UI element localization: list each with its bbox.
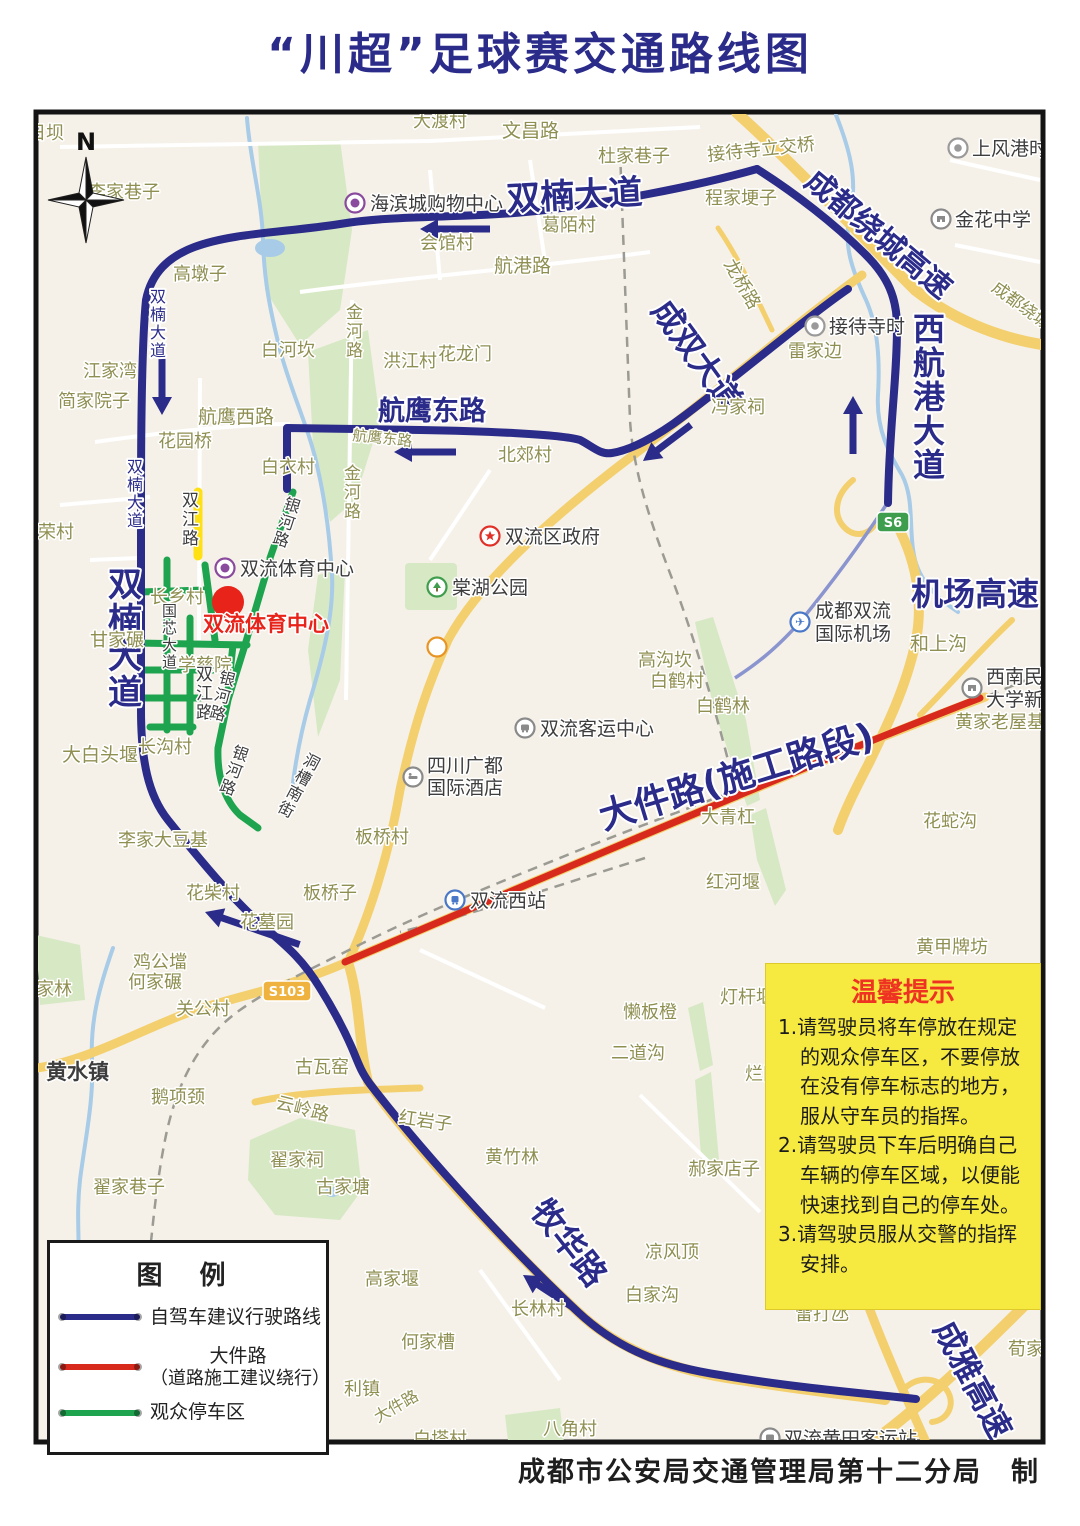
poi-label: 接待寺时 (829, 316, 905, 338)
tip-item: 2.请驾驶员下车后明确自己车辆的停车区域，以便能快速找到自己的停车处。 (778, 1131, 1028, 1220)
legend-item-construction-road: 大件路 （道路施工建议绕行） (60, 1345, 326, 1389)
map-label: 鸡公壋 (133, 952, 187, 973)
bus-poi-icon (516, 719, 535, 738)
map-label: 高沟坎 (638, 650, 692, 671)
poi-label: 上风港时 (972, 138, 1048, 160)
map-label: 葛陌村 (542, 215, 596, 236)
map-label: 白鹤村 (650, 671, 704, 692)
poi-label: 双流区政府 (505, 526, 600, 548)
map-label: 日坝 (28, 123, 64, 144)
svg-text:✈: ✈ (795, 615, 805, 629)
poi-label: 四川广都 (427, 755, 503, 777)
legend-construction-road-label: 大件路 （道路施工建议绕行） (150, 1345, 326, 1389)
hotel-poi-icon (404, 768, 423, 787)
school-poi-icon (932, 210, 951, 229)
station-poi-icon (949, 139, 968, 158)
poi-label: 双流体育中心 (240, 558, 354, 580)
map-label: 宋家林 (18, 979, 72, 1000)
tips-box: 温馨提示 1.请驾驶员将车停放在规定的观众停车区，不要停放在没有停车标志的地方，… (765, 963, 1041, 1310)
compass-north-label: N (76, 128, 96, 156)
map-label: 板桥子 (303, 883, 357, 904)
map-label: 洪江村 (383, 351, 437, 372)
poi-label: 双流西站 (470, 890, 546, 912)
map-label: 白塔村 (413, 1429, 467, 1450)
legend-construction-road-note: （道路施工建议绕行） (150, 1368, 326, 1390)
map-label: 白家沟 (625, 1285, 679, 1306)
map-label: 程家埂子 (705, 188, 777, 209)
poi-label: 大学新 (986, 689, 1043, 711)
map-label: 花蛇沟 (923, 811, 977, 832)
map-label: 航鹰东路 (378, 395, 487, 427)
poi-label: 成都双流 (815, 600, 891, 622)
poi-label: 双流黄田客运站 (784, 1428, 917, 1450)
map-label: 高墩子 (173, 264, 227, 285)
map-label: 甘家碾 (90, 630, 144, 651)
pond (255, 239, 285, 257)
map-label: 荀家 (1008, 1339, 1044, 1360)
map-label: 大白头堰 (62, 744, 138, 766)
map-label: 黄水镇 (46, 1060, 109, 1084)
legend-parking-area-label: 观众停车区 (150, 1401, 245, 1424)
mall-poi-icon (346, 194, 365, 213)
legend-title: 图 例 (50, 1255, 326, 1292)
map-label: 简家院子 (58, 391, 130, 412)
map-label: 翟家祠 (270, 1150, 324, 1171)
stadium-poi-icon (216, 559, 235, 578)
map-label: 花墓园 (240, 912, 294, 933)
poi-label: 金花中学 (955, 209, 1031, 231)
train-poi-icon (446, 891, 465, 910)
map-label: 翟家巷子 (93, 1177, 165, 1198)
map-label: 双江路 (182, 491, 199, 549)
map-label: 李家大豆基 (118, 830, 208, 851)
map-label: 文昌路 (502, 120, 559, 142)
map-label: 江家湾 (83, 361, 137, 382)
map-label: 何家槽 (401, 1332, 455, 1353)
poi-label: 双流客运中心 (540, 718, 654, 740)
svg-text:S103: S103 (269, 985, 306, 1000)
map-label: 大渡村 (413, 111, 467, 132)
map-label: 和上沟 (910, 633, 967, 655)
map-label: 黄家老屋基 (955, 712, 1045, 733)
school-poi-icon (963, 679, 982, 698)
map-label: 高家堰 (365, 1269, 419, 1290)
map-label: 白河坎 (261, 340, 315, 361)
svg-text:S6: S6 (884, 516, 902, 531)
map-label: 国芯大道 (162, 602, 177, 671)
map-label: 机场高速 (911, 575, 1039, 613)
map-label: 利镇 (344, 1379, 380, 1400)
map-label: 古瓦窑 (295, 1057, 349, 1078)
map-label: 航鹰西路 (198, 406, 274, 428)
map-label: 花园桥 (158, 431, 212, 452)
map-label: 白鹤林 (696, 696, 750, 717)
park-poi-icon (428, 578, 447, 597)
legend-construction-road-name: 大件路 (150, 1345, 326, 1368)
map-label: 会馆村 (420, 233, 474, 254)
map-label: 西航港大道 (913, 310, 946, 484)
map-label: 红河堰 (706, 872, 760, 893)
map-label: 板桥村 (355, 827, 409, 848)
map-label: 金河路 (344, 464, 361, 522)
map-label: 金河路 (346, 303, 363, 361)
legend-construction-road-line (60, 1364, 140, 1370)
map-label: 古家塘 (316, 1177, 370, 1198)
map-label: 二道沟 (611, 1043, 665, 1064)
map-label: 鹅项颈 (151, 1087, 205, 1108)
tips-list: 1.请驾驶员将车停放在规定的观众停车区，不要停放在没有停车标志的地方，服从守车员… (778, 1013, 1028, 1279)
legend-item-parking-area: 观众停车区 (60, 1401, 326, 1424)
map-label: 长林村 (511, 1299, 565, 1320)
poi-label: 西南民 (986, 666, 1043, 688)
map-label: 花龙门 (438, 344, 492, 365)
map-label: 大青杠 (701, 807, 755, 828)
map-label: 关公村 (176, 999, 230, 1020)
road-badge: S103 (263, 981, 311, 1001)
legend-parking-area-line (60, 1410, 140, 1416)
map-label: 冯家祠 (711, 397, 765, 418)
bus-poi-icon (761, 1429, 780, 1448)
tip-item: 3.请驾驶员服从交警的指挥安排。 (778, 1220, 1028, 1279)
map-label: 花柴村 (186, 883, 240, 904)
map-label: 双楠大道 (127, 457, 143, 530)
map-label: 八角村 (543, 1419, 597, 1440)
poi-label: 国际机场 (815, 623, 891, 645)
map-label: 黄甲牌坊 (916, 937, 988, 958)
legend-driving-route-label: 自驾车建议行驶路线 (150, 1306, 321, 1329)
map-label: 黄竹林 (485, 1147, 539, 1168)
gov-poi-icon (481, 527, 500, 546)
poi-label: 棠湖公园 (452, 577, 528, 599)
map-label: 长沟村 (138, 737, 192, 758)
map-label: 懒板橙 (623, 1002, 677, 1023)
attribution: 成都市公安局交通管理局第十二分局 制 (0, 1450, 1040, 1489)
legend: 图 例 自驾车建议行驶路线 大件路 （道路施工建议绕行） 观众停车区 (47, 1240, 329, 1455)
map-label: 北郊村 (498, 445, 552, 466)
poi-label: 海滨城购物中心 (370, 193, 503, 215)
road-badge: S6 (877, 512, 909, 532)
legend-driving-route-line (60, 1314, 140, 1320)
station-poi-icon (806, 317, 825, 336)
map-label: 荣村 (38, 522, 74, 543)
airport-poi-icon: ✈ (791, 613, 810, 632)
hotelO-poi-icon (428, 638, 447, 657)
poi-label: 国际酒店 (427, 777, 503, 799)
map-label: 杜家巷子 (598, 146, 670, 167)
map-label: 白衣村 (261, 457, 315, 478)
map-label: 双楠大道 (150, 287, 166, 360)
tip-item: 1.请驾驶员将车停放在规定的观众停车区，不要停放在没有停车标志的地方，服从守车员… (778, 1013, 1028, 1131)
map-label: 郝家店子 (688, 1159, 760, 1180)
map-label: 凉风顶 (645, 1242, 699, 1263)
legend-item-driving-route: 自驾车建议行驶路线 (60, 1306, 326, 1329)
map-label: 何家碾 (128, 972, 182, 993)
map-label: 双流体育中心 (203, 612, 329, 636)
map-label: 航港路 (494, 255, 551, 277)
tips-title: 温馨提示 (778, 972, 1028, 1009)
map-label: 雷家边 (788, 341, 842, 362)
map-label: 双楠大道 (505, 172, 643, 219)
